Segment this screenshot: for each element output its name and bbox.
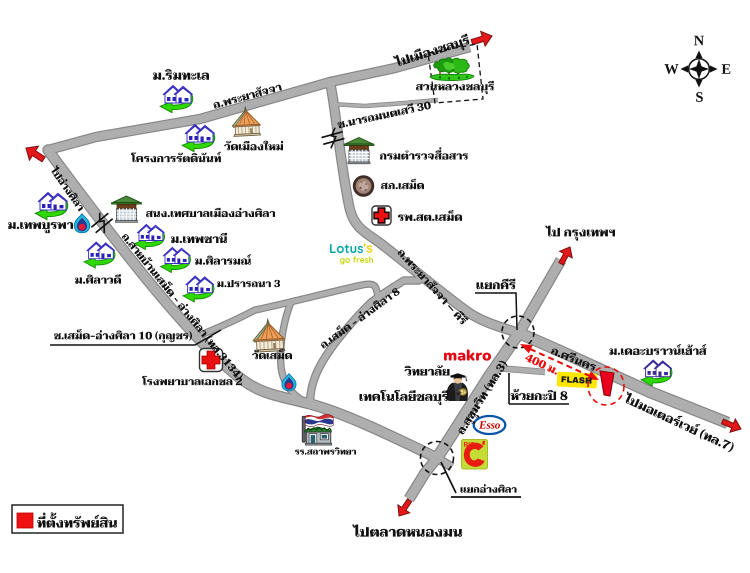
svg-text:BIG: BIG: [464, 441, 476, 448]
